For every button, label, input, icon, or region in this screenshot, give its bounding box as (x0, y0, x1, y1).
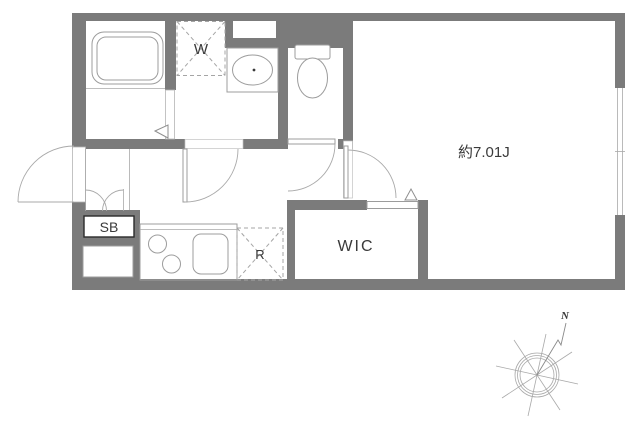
compass-needle (537, 323, 566, 375)
walk-in-closet: WIC (337, 189, 418, 255)
entry-door-opening (73, 147, 86, 202)
floor-plan: SB W (0, 0, 640, 426)
pipe-space-niche (233, 21, 276, 38)
compass-icon: N (496, 310, 578, 416)
washroom-door (183, 140, 243, 203)
washing-machine-area: W (177, 22, 225, 76)
refrigerator-label: R (255, 247, 264, 262)
wic-label: WIC (337, 238, 374, 255)
washing-machine-label: W (194, 41, 209, 58)
kitchen-counter (140, 224, 237, 280)
bathroom (86, 32, 175, 139)
main-room-door (344, 141, 397, 198)
washroom: W (177, 22, 278, 203)
entrance-alcove (83, 246, 133, 277)
shoe-cabinet-doors (86, 149, 130, 211)
main-room: 約7.01J (458, 88, 625, 215)
bathtub-icon (92, 32, 163, 84)
wic-sliding-door (367, 202, 418, 209)
stove-burner-icon (163, 255, 181, 273)
kitchen: R (140, 224, 283, 280)
toilet-door (288, 139, 335, 191)
wic-door-marker (405, 189, 417, 200)
kitchen-sink-icon (193, 234, 228, 274)
entry-door-arc (18, 146, 74, 202)
main-room-size-label: 約7.01J (458, 144, 510, 161)
compass-north-label: N (560, 310, 570, 322)
floor-plan-drawing: SB W (0, 0, 640, 426)
stove-burner-icon (149, 235, 167, 253)
shoe-box-label: SB (100, 219, 119, 235)
refrigerator-area: R (237, 228, 283, 280)
toilet-room (288, 45, 335, 191)
window (615, 88, 625, 215)
toilet-icon (295, 45, 330, 98)
bathroom-door-marker (155, 125, 168, 138)
washbasin-icon (227, 48, 278, 92)
